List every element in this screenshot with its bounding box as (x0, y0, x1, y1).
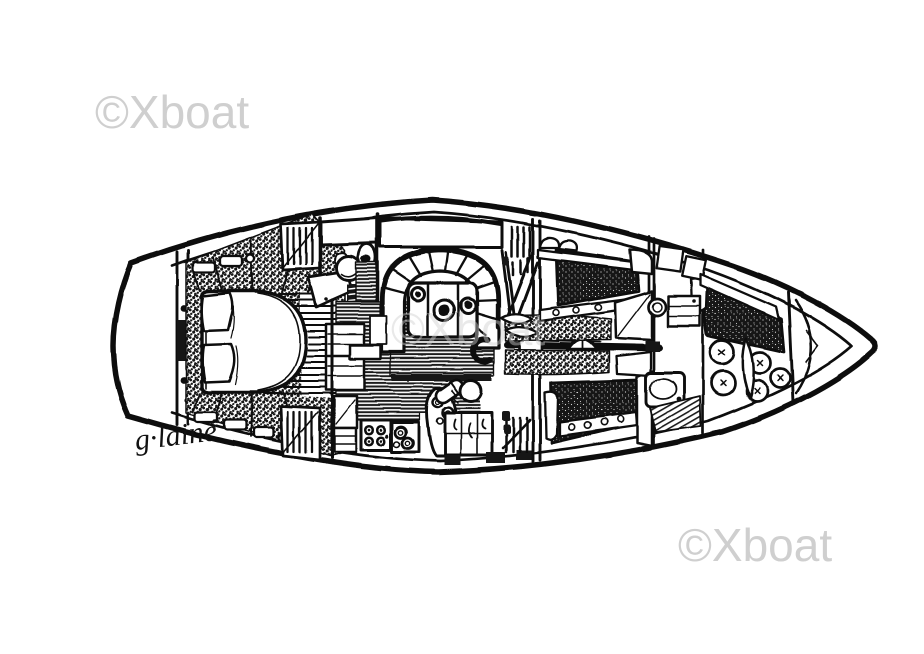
svg-text:©Xboat: ©Xboat (95, 86, 249, 138)
svg-text:©Xboat: ©Xboat (391, 303, 545, 355)
svg-text:©Xboat: ©Xboat (678, 519, 832, 571)
